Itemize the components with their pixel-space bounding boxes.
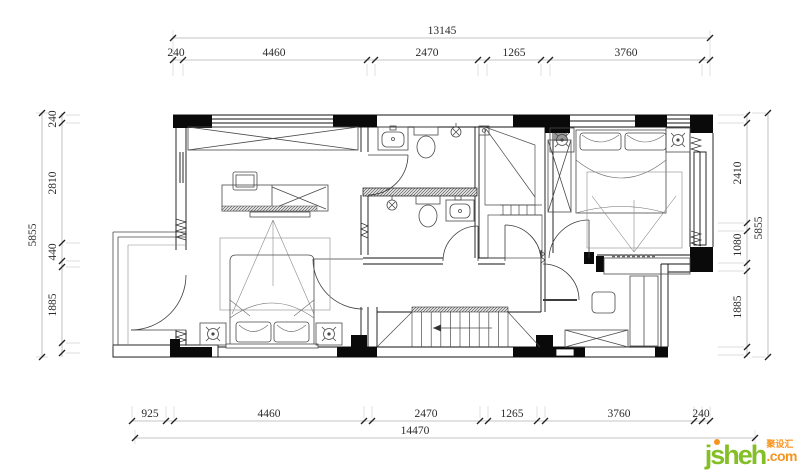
watermark-logo: jsheh 聚设汇 .com <box>705 440 797 467</box>
dim-top-overall: 13145 <box>428 25 457 37</box>
shower-head-b <box>387 196 397 210</box>
dim-bottom-seg-5: 240 <box>692 408 710 420</box>
bed-2 <box>576 130 666 213</box>
dim-top-seg-2: 2470 <box>416 47 439 59</box>
walls <box>113 115 713 357</box>
dim-top-seg-1: 4460 <box>263 47 286 59</box>
dim-left-seg-2: 440 <box>47 243 59 261</box>
dim-bottom-seg-4: 3760 <box>608 408 631 420</box>
dim-right-overall: 5855 <box>753 216 765 239</box>
dim-right-seg-2: 1885 <box>732 295 744 318</box>
floor-plan-page: 13145 240 4460 2470 1265 3760 925 4460 2… <box>0 0 800 468</box>
wall-columns <box>113 115 713 357</box>
bath-b-door <box>443 226 478 261</box>
landing-door <box>505 225 541 261</box>
sink-a <box>378 126 408 150</box>
lamp-icon <box>322 327 336 341</box>
dim-bottom-seg-3: 1265 <box>501 408 524 420</box>
tiled-wall-band <box>363 188 477 196</box>
bedroom-2-furniture <box>548 128 690 256</box>
dimension-labels: 13145 240 4460 2470 1265 3760 925 4460 2… <box>27 25 765 437</box>
dim-left-seg-0: 240 <box>47 110 59 128</box>
dim-top-seg-4: 3760 <box>615 47 638 59</box>
dim-right-seg-1: 1080 <box>732 233 744 256</box>
study-furniture <box>565 258 690 347</box>
stair-edge-strip <box>412 307 508 312</box>
low-cabinet <box>565 330 628 347</box>
dim-top-seg-3: 1265 <box>503 47 526 59</box>
bathroom-fixtures <box>378 123 489 227</box>
sink-b <box>446 196 474 221</box>
toilet-a <box>414 127 438 158</box>
dim-bottom-overall: 14470 <box>401 425 430 437</box>
bedroom-2-door <box>549 220 589 258</box>
dim-top-seg-0: 240 <box>167 47 185 59</box>
tv-1 <box>250 212 310 217</box>
dim-left-seg-3: 1885 <box>47 293 59 316</box>
brand-name: jsheh <box>705 442 766 469</box>
brand-tld: .com <box>766 449 797 463</box>
lamp-icon <box>206 327 220 341</box>
dimension-ticks <box>39 35 771 441</box>
dim-right-seg-0: 2410 <box>732 161 744 184</box>
dim-left-seg-1: 2810 <box>47 171 59 194</box>
dim-bottom-seg-2: 2470 <box>415 408 438 420</box>
balcony-door <box>131 275 186 330</box>
stool <box>233 172 257 190</box>
bed-1 <box>226 255 318 348</box>
bedroom-1-furniture <box>188 127 358 348</box>
staircase <box>377 127 542 347</box>
rug-2 <box>587 172 682 252</box>
bedroom-1-door <box>313 259 363 309</box>
floor-plan-drawing: 13145 240 4460 2470 1265 3760 925 4460 2… <box>0 0 800 468</box>
dim-bottom-seg-1: 4460 <box>258 408 281 420</box>
wardrobe-1 <box>188 127 358 150</box>
shower-head-a <box>451 123 461 137</box>
chair <box>592 292 615 313</box>
study-door <box>543 264 579 300</box>
dim-left-overall: 5855 <box>27 223 39 246</box>
wardrobe-2 <box>548 140 571 212</box>
dimension-lines <box>42 38 768 438</box>
side-cabinet <box>630 276 658 346</box>
lamp-icon <box>671 133 685 147</box>
dresser <box>222 185 328 211</box>
dim-bottom-seg-0: 925 <box>141 408 159 420</box>
toilet-b <box>416 196 440 227</box>
